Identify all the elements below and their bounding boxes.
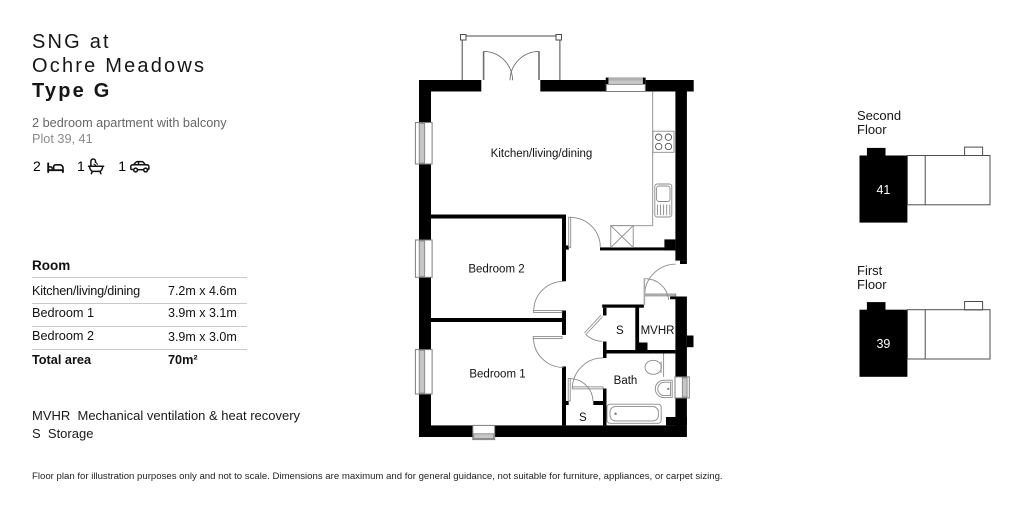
svg-text:Bath: Bath bbox=[614, 375, 638, 387]
svg-text:Bedroom 2: Bedroom 2 bbox=[468, 264, 524, 276]
svg-text:39: 39 bbox=[876, 337, 890, 351]
svg-text:S: S bbox=[616, 325, 624, 337]
svg-text:Kitchen/living/dining: Kitchen/living/dining bbox=[491, 148, 593, 160]
svg-text:S: S bbox=[579, 412, 587, 424]
svg-text:41: 41 bbox=[876, 183, 890, 197]
svg-text:MVHR: MVHR bbox=[641, 325, 675, 337]
svg-text:Bedroom 1: Bedroom 1 bbox=[469, 369, 525, 381]
